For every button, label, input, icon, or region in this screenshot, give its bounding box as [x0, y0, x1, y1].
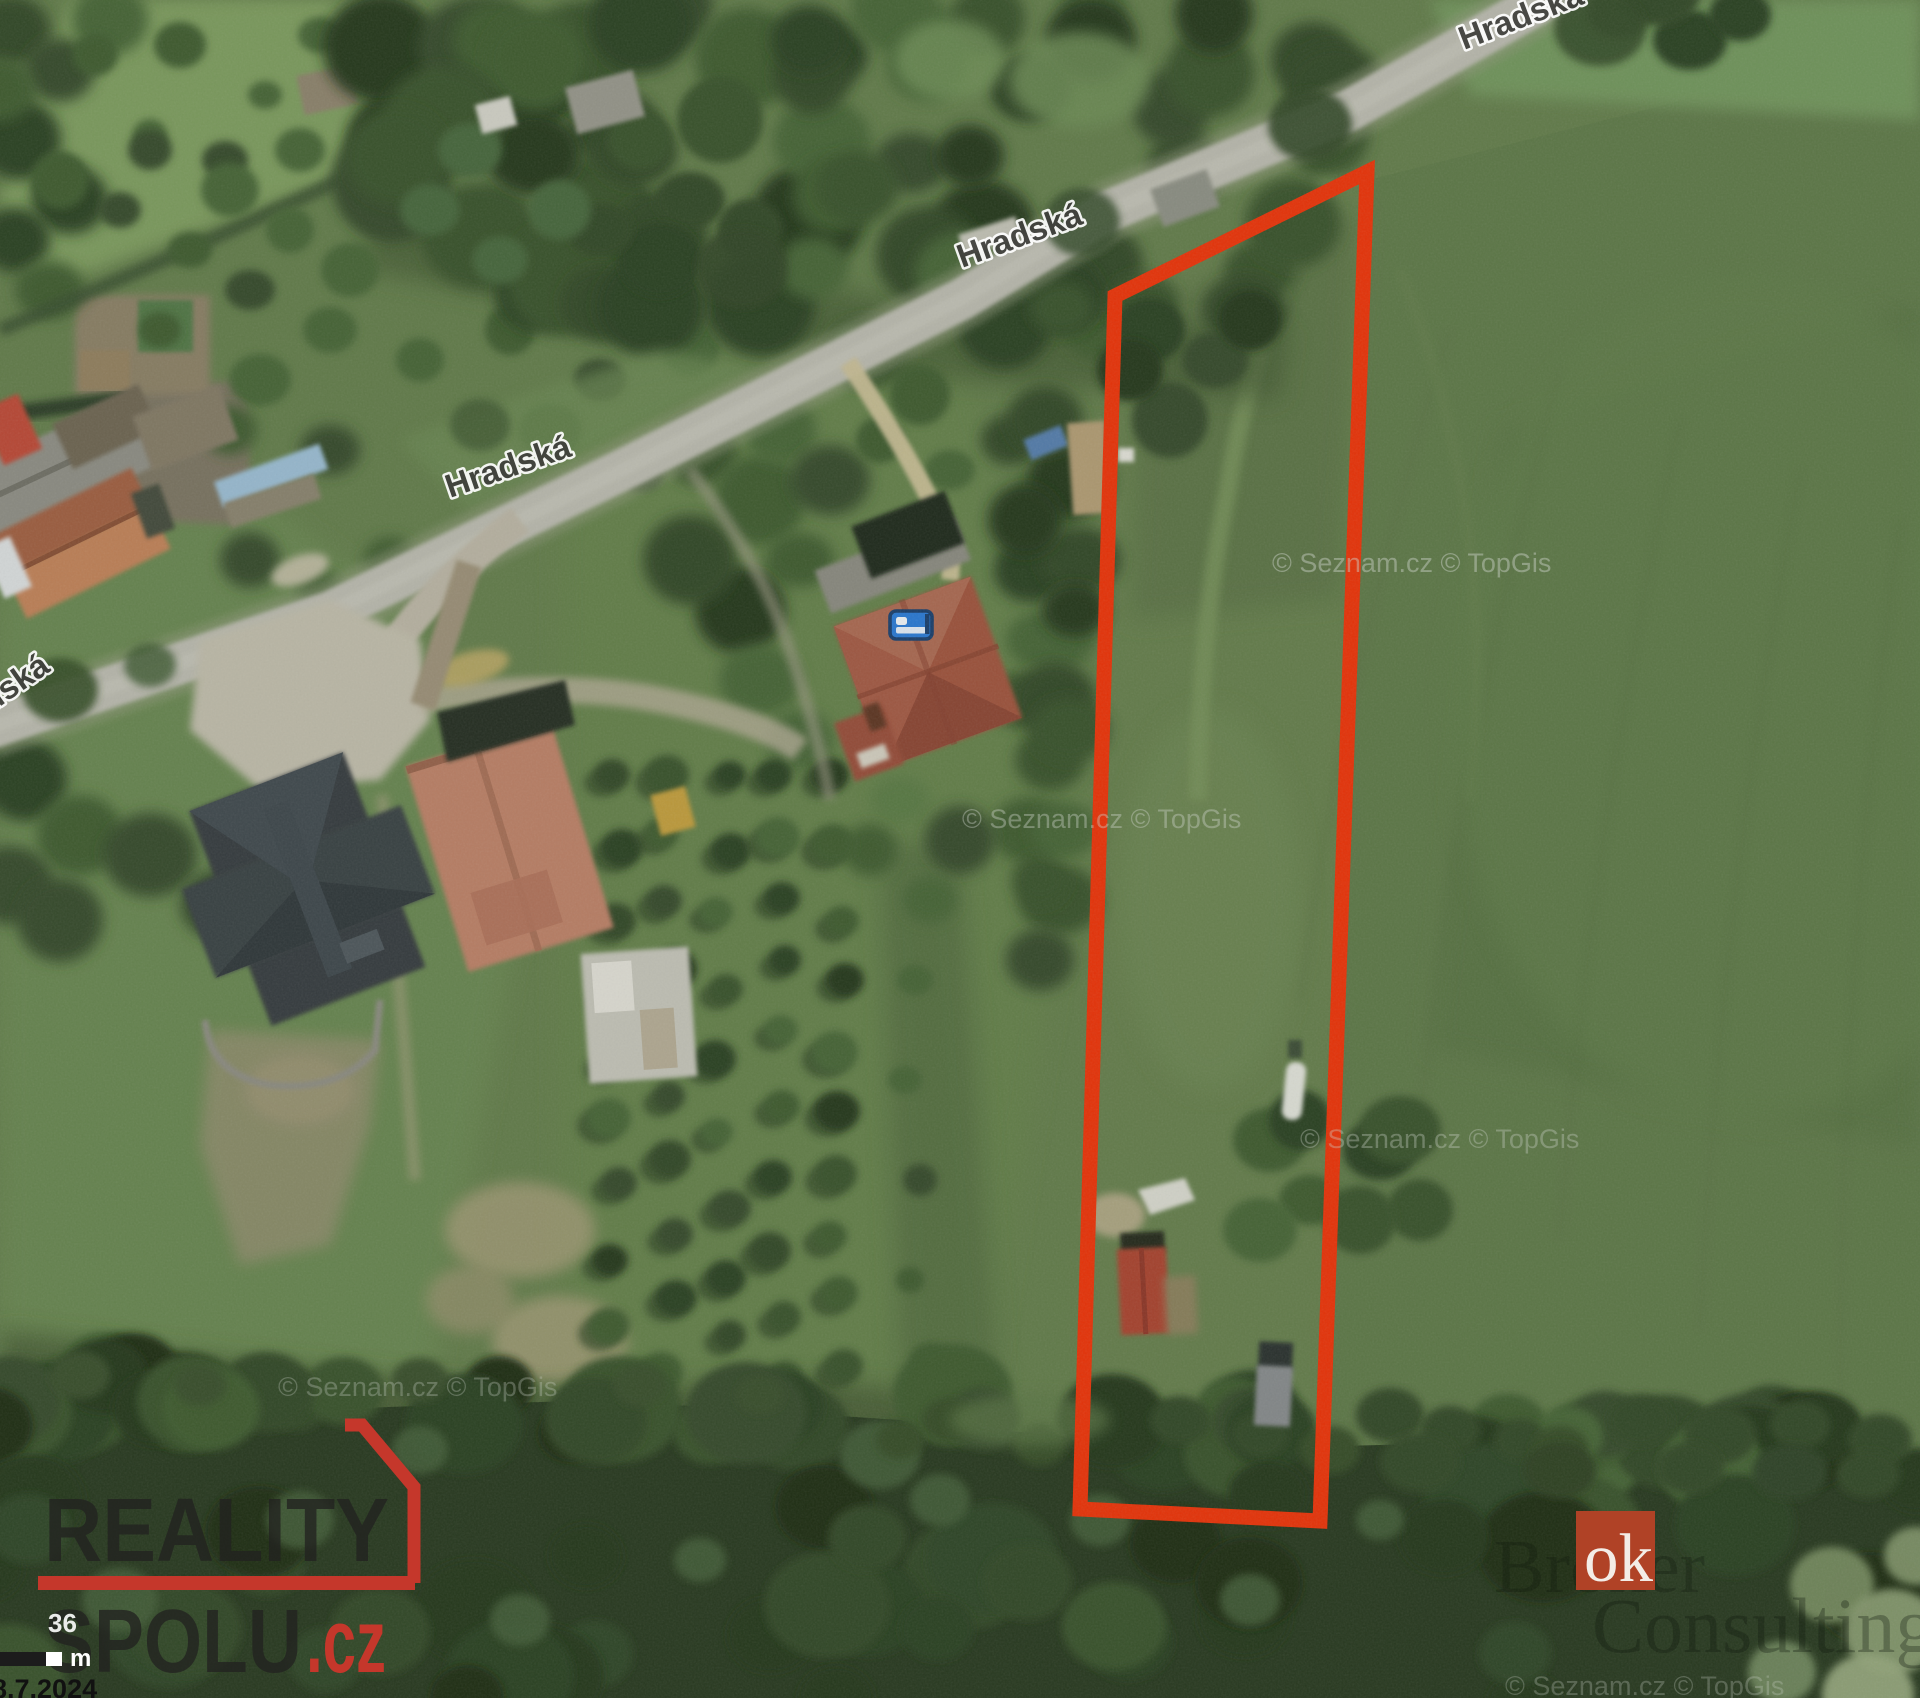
- svg-text:8.7.2024: 8.7.2024: [0, 1674, 97, 1698]
- svg-text:© Seznam.cz © TopGis: © Seznam.cz © TopGis: [1272, 548, 1551, 578]
- svg-text:© Seznam.cz © TopGis: © Seznam.cz © TopGis: [1300, 1124, 1579, 1154]
- svg-text:© Seznam.cz © TopGis: © Seznam.cz © TopGis: [962, 804, 1241, 834]
- svg-text:© Seznam.cz © TopGis: © Seznam.cz © TopGis: [1505, 1671, 1784, 1698]
- svg-text:REALITY: REALITY: [44, 1481, 389, 1581]
- svg-text:ok: ok: [1584, 1520, 1654, 1596]
- svg-text:36: 36: [48, 1608, 77, 1638]
- svg-text:© Seznam.cz © TopGis: © Seznam.cz © TopGis: [278, 1372, 557, 1402]
- svg-text:m: m: [70, 1645, 91, 1672]
- svg-text:.cz: .cz: [306, 1592, 386, 1692]
